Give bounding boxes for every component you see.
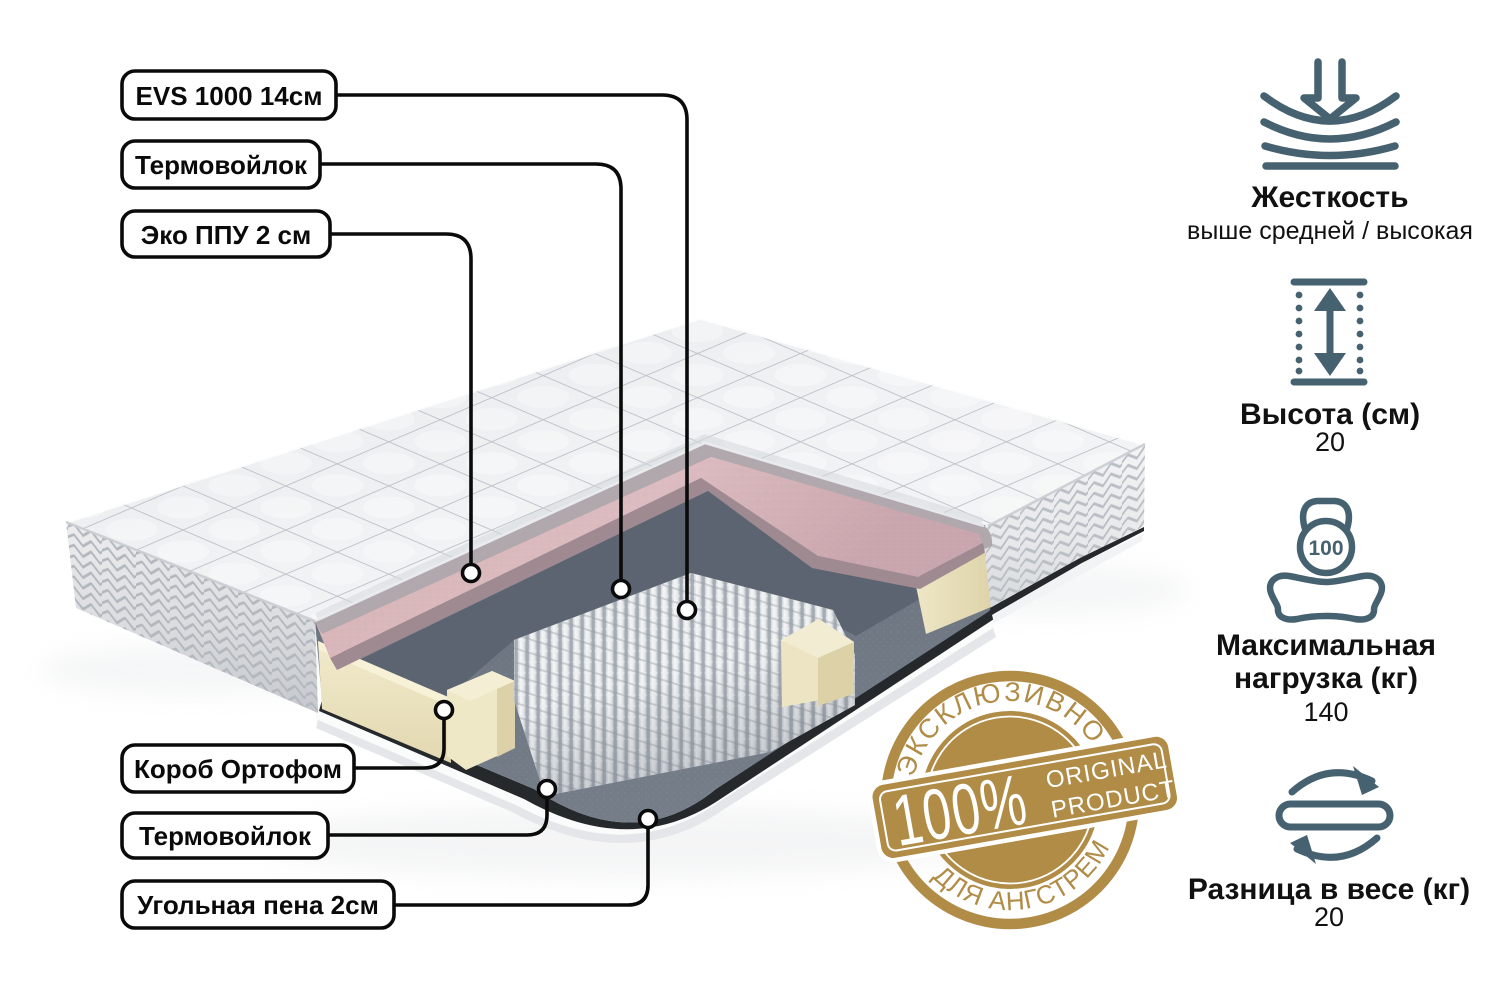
- svg-text:20: 20: [1315, 427, 1345, 457]
- svg-text:Угольная пена 2см: Угольная пена 2см: [137, 890, 379, 920]
- svg-text:Короб Ортофом: Короб Ортофом: [134, 754, 342, 784]
- svg-text:Максимальная: Максимальная: [1216, 629, 1436, 662]
- svg-text:Жесткость: Жесткость: [1250, 181, 1408, 214]
- svg-text:EVS 1000 14см: EVS 1000 14см: [136, 81, 323, 111]
- svg-text:20: 20: [1314, 902, 1344, 932]
- svg-text:140: 140: [1303, 697, 1348, 727]
- svg-text:Термовойлок: Термовойлок: [139, 821, 312, 851]
- svg-text:100: 100: [1308, 537, 1343, 560]
- svg-text:Эко ППУ 2 см: Эко ППУ 2 см: [141, 220, 311, 250]
- svg-text:выше средней / высокая: выше средней / высокая: [1187, 217, 1473, 245]
- svg-text:нагрузка (кг): нагрузка (кг): [1234, 662, 1418, 695]
- svg-text:Термовойлок: Термовойлок: [135, 150, 308, 180]
